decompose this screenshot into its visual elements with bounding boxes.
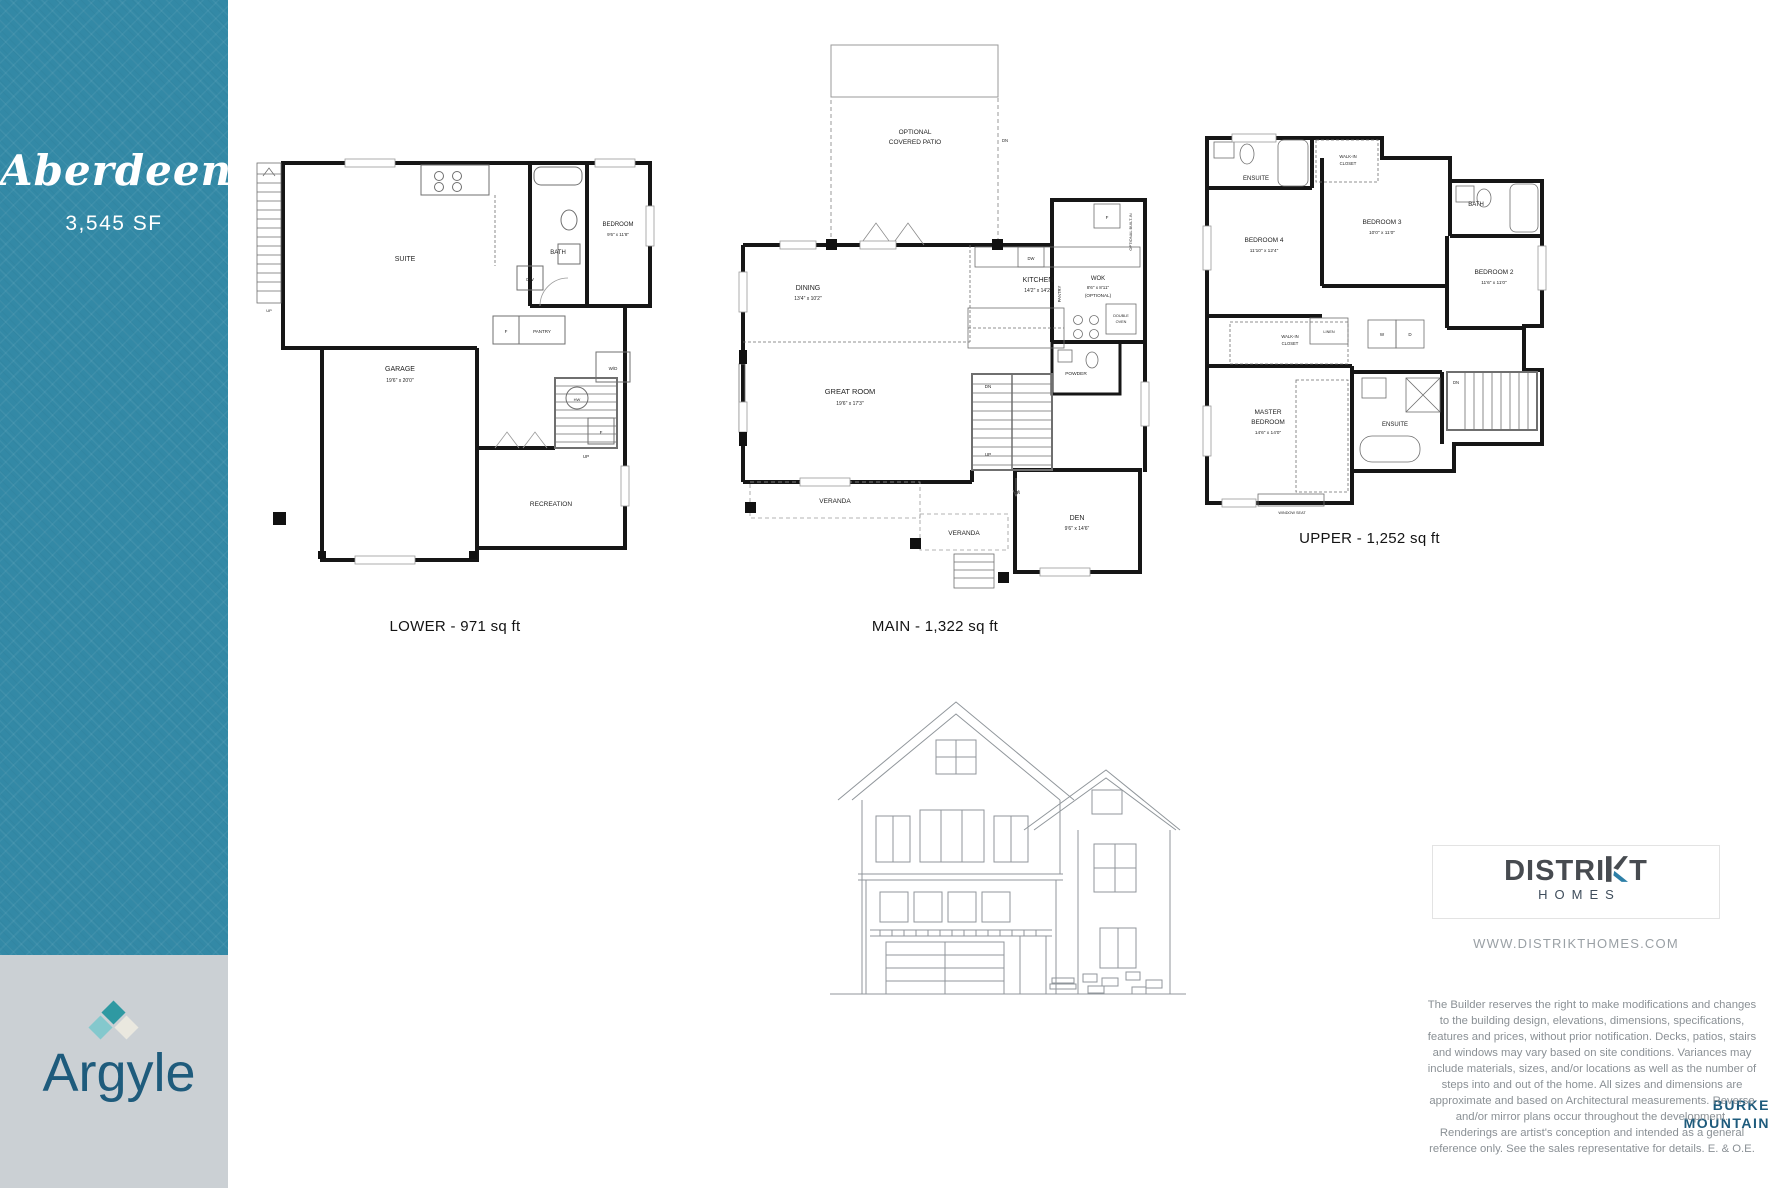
plan-room-label: 9'6" x 11'8" [607, 232, 629, 237]
main-walls [743, 200, 1145, 572]
plan-room-label: ENSUITE [1382, 422, 1408, 428]
plan-room-label: F [1106, 215, 1109, 220]
distrikt-website-link[interactable]: WWW.DISTRIKTHOMES.COM [1432, 936, 1720, 951]
distrikt-word-part2: T [1629, 855, 1648, 887]
plan-room-label: 19'6" x 17'3" [836, 401, 864, 407]
plan-room-label: COVERED PATIO [889, 139, 942, 146]
plan-room-label: 14'2" x 14'2" [1024, 288, 1052, 294]
plan-room-label: VERANDA [948, 530, 980, 537]
distrikt-logo-box: DISTRIT HOMES [1432, 845, 1720, 919]
plan-room-label: PANTRY [1057, 285, 1062, 302]
floor-plan-upper: ENSUITEWALK-INCLOSETBEDROOM 411'10" x 12… [1192, 126, 1547, 526]
main-caption: MAIN - 1,322 sq ft [720, 618, 1150, 635]
plan-room-label: PANTRY [533, 329, 551, 334]
plan-room-label: DW [1028, 256, 1035, 261]
upper-walls [1207, 138, 1542, 503]
plan-room-label: 8'6" x 8'11" [1087, 285, 1110, 290]
plan-room-label: D [1408, 332, 1412, 337]
plan-room-label: GREAT ROOM [825, 387, 876, 396]
plan-room-label: BEDROOM 2 [1474, 269, 1513, 276]
plan-room-label: 14'6" x 14'0" [1255, 430, 1282, 436]
lower-windows [345, 159, 654, 564]
plan-room-label: (OPTIONAL) [1085, 293, 1112, 298]
plan-square-footage: 3,545 SF [0, 212, 228, 236]
brochure-page: Aberdeen 3,545 SF Argyle BURKE MOUNTAIN [0, 0, 1780, 1188]
plan-room-label: BATH [550, 250, 566, 256]
plan-room-label: MASTER [1254, 409, 1281, 416]
plan-room-label: UP [583, 454, 589, 459]
upper-fixtures [1214, 140, 1538, 506]
plan-room-label: 13'4" x 10'2" [794, 296, 822, 302]
plan-room-label: ENSUITE [1243, 176, 1269, 182]
plan-room-label: BEDROOM [602, 222, 633, 228]
house-elevation-drawing [828, 678, 1188, 1018]
plan-room-label: BEDROOM 4 [1244, 237, 1283, 244]
plan-room-label: UP [985, 452, 991, 457]
plan-room-label: RECREATION [530, 501, 572, 508]
plan-name: Aberdeen [0, 146, 228, 195]
lower-posts [273, 512, 477, 559]
plan-room-label: 19'6" x 20'0" [386, 378, 414, 384]
plan-room-label: POWDER [1065, 371, 1087, 377]
plan-room-label: CLOSET [1340, 161, 1357, 166]
plan-room-label: KITCHEN [1023, 277, 1054, 284]
plan-room-label: BATH [1468, 202, 1484, 208]
plan-room-label: DEN [1070, 515, 1085, 522]
argyle-logo-wordmark: Argyle [0, 1042, 228, 1104]
plan-room-label: DN [1453, 380, 1459, 385]
plan-room-label: DN [1002, 138, 1008, 143]
plan-room-label: W [1380, 332, 1385, 337]
disclaimer-text: The Builder reserves the right to make m… [1426, 997, 1758, 1157]
plan-room-label: WALK-IN [1281, 334, 1298, 339]
distrikt-k-icon [1606, 856, 1628, 882]
plan-room-label: DINING [796, 285, 821, 292]
plan-room-label: HW [574, 397, 581, 402]
plan-room-label: 9'6" x 14'6" [1065, 526, 1090, 532]
plan-room-label: OPTIONAL BUILT-IN [1128, 213, 1133, 250]
floor-plan-lower: SUITEBATHBEDROOM9'6" x 11'8"GARAGE19'6" … [255, 146, 655, 566]
plan-room-label: VERANDA [819, 498, 851, 505]
plan-room-label: WOK [1091, 276, 1105, 282]
lower-walls [283, 163, 650, 560]
plan-room-label: W/D [609, 366, 618, 371]
plan-room-label: DW [526, 277, 534, 282]
lower-caption: LOWER - 971 sq ft [255, 618, 655, 635]
distrikt-logo-wordmark: DISTRIT [1433, 856, 1719, 886]
plan-room-label: 11'6" x 11'0" [1481, 280, 1507, 286]
plan-room-label: F [600, 430, 603, 435]
plan-room-label: DOUBLE [1113, 314, 1129, 318]
plan-room-label: LINEN [1323, 330, 1334, 334]
floor-plan-main: OPTIONALCOVERED PATIODNDINING13'4" x 10'… [720, 42, 1150, 627]
plan-room-label: DN [985, 384, 992, 389]
plan-room-label: BEDROOM 3 [1362, 219, 1401, 226]
upper-caption: UPPER - 1,252 sq ft [1192, 530, 1547, 547]
plan-room-label: WINDOW SEAT [1278, 511, 1306, 515]
distrikt-word-part1: DISTRI [1504, 855, 1605, 887]
plan-room-label: CLOSET [1282, 341, 1299, 346]
sidebar [0, 0, 228, 955]
plan-room-label: WALK-IN [1339, 154, 1356, 159]
plan-room-label: BEDROOM [1251, 419, 1285, 426]
plan-room-label: OPTIONAL [899, 129, 932, 136]
plan-room-label: DN [1014, 490, 1020, 495]
plan-room-label: OVEN [1116, 320, 1127, 324]
plan-room-label: 11'10" x 12'4" [1250, 248, 1279, 254]
plan-room-label: UP [266, 308, 272, 313]
distrikt-homes-label: HOMES [1433, 887, 1719, 902]
plan-room-label: SUITE [395, 256, 416, 263]
plan-room-label: GARAGE [385, 366, 415, 373]
plan-room-label: F [505, 329, 508, 334]
plan-room-label: 10'0" x 11'0" [1369, 230, 1395, 236]
